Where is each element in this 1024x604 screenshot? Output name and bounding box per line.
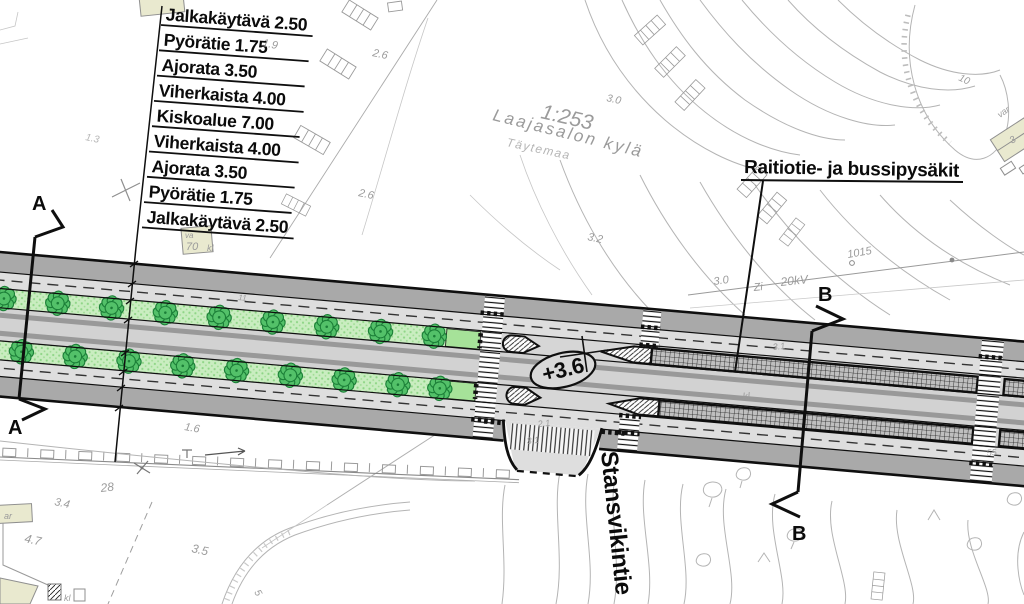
spot-30b: 3.0 [713,274,731,288]
site-plan-map: +3.6 A A B B Jalkakäytävä 2.50 Pyörätie … [0,0,1024,604]
spot-32: 3.2 [586,231,603,246]
section-b-top-label: B [818,284,832,306]
powerline-prefix: Zi [752,281,764,294]
spot-47: 4.7 [23,531,44,548]
power-line [688,252,1024,308]
powerline-voltage: 20kV [779,272,810,289]
street-name-label: Stansvikintie [595,450,637,596]
spot-30a: 3.0 [605,92,622,107]
width-label-2: Ajorata 3.50 [161,55,258,82]
building-label-70: 70 [186,241,199,253]
width-label-1: Pyörätie 1.75 [163,30,269,58]
spot-26a: 2.6 [370,47,389,62]
road-corridor [0,249,1024,523]
spot-5: 5 [251,588,264,599]
building-label-kl2: kl [64,593,72,603]
stops-label: Raitiotie- ja bussipysäkit [744,157,960,182]
width-label-4: Kiskoalue 7.00 [156,106,275,135]
section-a-top-label: A [32,193,46,215]
dim-31b: 3.1 [772,341,785,352]
spot-var: var [995,104,1012,120]
spot-13: 1.3 [84,132,100,146]
building-label-ar: ar [4,511,13,521]
spot-11: 11 [238,293,247,303]
building-label-va: va [185,231,194,240]
section-a-bottom-label: A [8,417,22,439]
spot-16: 1.6 [183,421,201,436]
spot-28: 28 [99,480,115,495]
section-b-bottom-label: B [792,523,806,545]
dim-31a: 3.1 [526,435,539,446]
spot-35: 3.5 [190,541,210,558]
spot-34: 3.4 [53,496,70,511]
powerline-pole-id: 1015 [846,245,873,261]
width-label-7: Pyörätie 1.75 [148,181,254,209]
building-label-kl: kl [207,243,215,253]
spot-10: 10 [957,73,972,88]
dim-21: 2.1 [536,418,550,429]
retaining-wall [0,445,520,483]
cadastre-texts: 1:253 Laajasalon kylä Täytemaa [491,100,646,162]
width-label-6: Ajorata 3.50 [151,156,248,183]
